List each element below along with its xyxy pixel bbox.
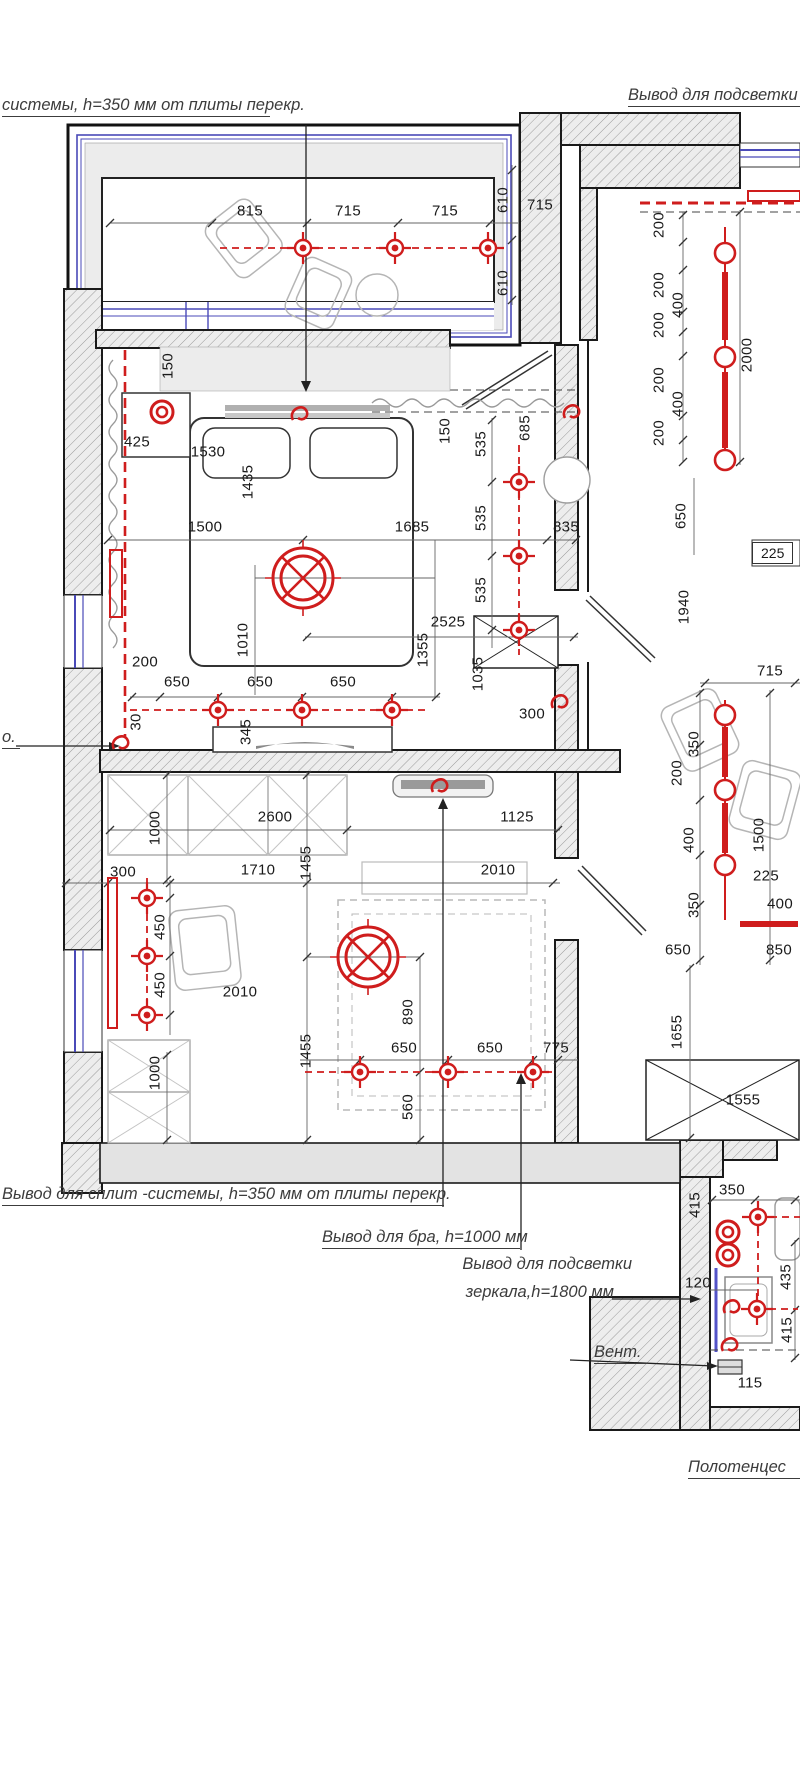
pillow	[310, 428, 397, 478]
wall-bottom-band	[100, 1143, 680, 1183]
wall	[723, 1140, 777, 1160]
floor-plan-page: { "colors":{"accent_red":"#cf1d1d","wind…	[0, 0, 800, 1778]
dim-label: 400	[767, 896, 793, 913]
annotation-backlight-top: Вывод для подсветки	[628, 86, 800, 107]
wall	[561, 113, 740, 145]
dim-label: 1125	[500, 809, 533, 826]
dim-label: 715	[432, 203, 458, 220]
dim-label: 200	[651, 212, 668, 238]
dim-label: 650	[665, 942, 691, 959]
dim-label: 150	[160, 353, 177, 379]
annotation-split-system-bottom: Вывод для сплит -системы, h=350 мм от пл…	[2, 1185, 444, 1206]
dim-label: 835	[553, 519, 579, 536]
dim-label: 415	[779, 1317, 796, 1343]
window-top-right	[740, 143, 800, 167]
dim-label: 650	[673, 503, 690, 529]
dim-label: 450	[152, 914, 169, 940]
dim-label: 815	[237, 203, 263, 220]
ceiling-outlet-icon	[344, 1056, 376, 1088]
door-leaf-bedroom	[462, 351, 552, 409]
dim-label: 850	[766, 942, 792, 959]
track-lamp-icon	[715, 855, 735, 875]
floor-plan-drawing	[0, 0, 800, 1500]
dim-label: 1685	[395, 519, 430, 536]
basin	[544, 457, 590, 503]
dim-label: 1710	[241, 862, 276, 879]
dim-label: 2600	[258, 809, 293, 826]
dim-label: 535	[473, 431, 490, 457]
door-leaf-hall	[586, 596, 655, 662]
wall	[64, 668, 102, 950]
track-lamp-icon	[715, 243, 735, 263]
dim-label: 1500	[751, 818, 768, 853]
dim-label: 2010	[223, 984, 258, 1001]
dim-label: 1530	[191, 444, 226, 461]
dim-label: 2000	[739, 338, 756, 373]
dim-label: 225	[753, 868, 779, 885]
dim-label: 890	[400, 999, 417, 1025]
dim-label: 1940	[676, 590, 693, 625]
dim-label: 345	[238, 719, 255, 745]
dim-label: 650	[330, 674, 356, 691]
wall	[100, 750, 620, 772]
wardrobe-kids-top	[108, 775, 347, 855]
led-strip	[748, 191, 800, 201]
dim-label: 450	[152, 972, 169, 998]
dim-label: 200	[132, 654, 158, 671]
annotation-mirror-light-1: Вывод для подсветки	[398, 1255, 632, 1274]
dim-label: 435	[778, 1264, 795, 1290]
dim-label: 560	[400, 1094, 417, 1120]
ceiling-outlet-icon	[286, 694, 318, 726]
dim-label: 2010	[481, 862, 516, 879]
spot-light-icon	[717, 1244, 739, 1266]
dim-label: 650	[164, 674, 190, 691]
dim-label: 2525	[431, 614, 466, 631]
dim-label: 200	[669, 760, 686, 786]
ceiling-outlet-icon	[432, 1056, 464, 1088]
ceiling-outlet-icon	[503, 540, 535, 572]
dim-label: 1500	[188, 519, 223, 536]
curtain-top	[372, 399, 564, 407]
tub-partial	[775, 1198, 800, 1260]
dim-label: 115	[738, 1375, 763, 1392]
dim-label: 150	[437, 418, 454, 444]
dim-label: 350	[719, 1182, 745, 1199]
dim-label: 200	[651, 367, 668, 393]
door-leaf-kids-room	[578, 866, 646, 935]
dim-label: 200	[651, 272, 668, 298]
ceiling-outlet-icon	[376, 694, 408, 726]
dim-label: 1455	[298, 846, 315, 881]
armchair-kids	[168, 905, 242, 991]
boxed-dim-label: 225	[752, 542, 793, 564]
dim-label: 1455	[298, 1034, 315, 1069]
wall	[580, 145, 740, 188]
dim-label: 650	[247, 674, 273, 691]
dim-label: 350	[686, 892, 703, 918]
annotation-vent: Вент.	[594, 1343, 648, 1364]
dim-label: 715	[335, 203, 361, 220]
dim-label: 400	[681, 827, 698, 853]
dim-label: 1435	[240, 465, 257, 500]
dim-label: 415	[687, 1192, 704, 1218]
ceiling-outlet-icon	[503, 466, 535, 498]
dim-label: 685	[517, 415, 534, 441]
annotation-left-fragment: о.	[2, 728, 20, 749]
annotation-towel-dryer: Полотенцес	[688, 1458, 800, 1479]
ceiling-outlet-icon	[742, 1201, 774, 1233]
spot-light-icon	[717, 1221, 739, 1243]
dim-label: 400	[670, 292, 687, 318]
ceiling-outlet-icon	[202, 694, 234, 726]
ceiling-outlet-icon	[131, 882, 163, 914]
dim-label: 350	[686, 731, 703, 757]
dim-label: 200	[651, 312, 668, 338]
dim-label: 1000	[147, 811, 164, 846]
window-left-upper	[64, 595, 102, 668]
led-strip	[110, 550, 122, 617]
dim-label: 120	[685, 1275, 711, 1292]
dim-label: 200	[651, 420, 668, 446]
wall	[710, 1407, 800, 1430]
dim-label: 300	[110, 864, 136, 881]
dim-label: 775	[543, 1040, 569, 1057]
track-lamp-icon	[715, 780, 735, 800]
dim-label: 715	[527, 197, 553, 214]
dim-label: 425	[124, 434, 150, 451]
dim-label: 300	[519, 706, 545, 723]
vent-grille	[718, 1360, 742, 1374]
dim-label: 610	[495, 187, 512, 213]
ceiling-outlet-icon	[131, 940, 163, 972]
wall	[555, 772, 578, 858]
wall	[580, 188, 597, 340]
wall	[520, 113, 561, 343]
wall	[96, 330, 450, 348]
balcony	[68, 125, 520, 345]
dim-label: 1655	[669, 1015, 686, 1050]
dim-label: 1000	[147, 1056, 164, 1091]
dim-label: 650	[391, 1040, 417, 1057]
ceiling-outlet-icon	[131, 999, 163, 1031]
annotation-mirror-light-2: зеркала,h=1800 мм	[398, 1283, 614, 1302]
dim-label: 1355	[415, 633, 432, 668]
dim-label: 535	[473, 505, 490, 531]
wall	[680, 1140, 723, 1177]
storage-box-right	[646, 1060, 799, 1140]
track-lamp-icon	[715, 347, 735, 367]
dim-label: 1010	[235, 623, 252, 658]
track-lamp-icon	[715, 450, 735, 470]
track-lamp-icon	[715, 705, 735, 725]
dim-label: 610	[495, 270, 512, 296]
dim-label: 30	[128, 713, 145, 730]
dim-label: 1035	[470, 657, 487, 692]
dim-label: 715	[757, 663, 783, 680]
led-strip	[108, 878, 117, 1028]
annotation-split-system-top: системы, h=350 мм от плиты перекр.	[2, 96, 270, 117]
window-left-lower	[64, 950, 102, 1052]
dim-label: 650	[477, 1040, 503, 1057]
annotation-sconce: Вывод для бра, h=1000 мм	[322, 1228, 520, 1249]
dim-label: 400	[670, 391, 687, 417]
ac-unit-grille	[401, 780, 485, 789]
dim-label: 1555	[726, 1092, 761, 1109]
dim-label: 535	[473, 577, 490, 603]
